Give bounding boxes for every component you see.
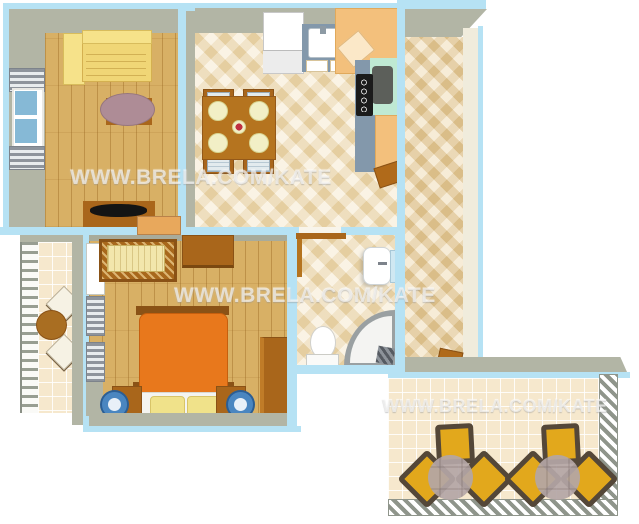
sofa-seat-stitching [86, 50, 146, 76]
bedroom-window-2 [86, 342, 105, 382]
watermark-bottom: WWW.BRELA.COM/KATE [382, 396, 608, 417]
corridor-wall-right [463, 28, 478, 375]
range-hood [372, 66, 393, 104]
watermark-top: WWW.BRELA.COM/KATE [70, 166, 332, 190]
living-room-door [137, 216, 181, 235]
sink-cabinet-doors [306, 60, 328, 72]
corridor-floor [405, 37, 463, 367]
plate-1 [208, 101, 228, 121]
plate-4 [249, 133, 269, 153]
sofa-back [82, 30, 152, 44]
living-room-window-glass-2 [15, 119, 37, 143]
plate-2 [249, 101, 269, 121]
bathroom-door [297, 239, 302, 277]
terrace-wall-top [405, 357, 627, 372]
coffee-table [100, 93, 155, 126]
wall-bedroom-bathroom [287, 227, 297, 432]
cooktop-burners [359, 78, 369, 112]
plate-3 [208, 133, 228, 153]
shower-mat [376, 346, 396, 366]
floor-plan: WWW.BRELA.COM/KATE WWW.BRELA.COM/KATE WW… [0, 0, 639, 524]
sink-faucet [320, 26, 326, 34]
wall-living-kitchen-outline [178, 8, 186, 227]
sink-tap [378, 262, 387, 265]
bedroom-wall-left-lower [86, 382, 103, 416]
bathroom-door-frame [296, 233, 346, 239]
wardrobe [182, 235, 234, 268]
bedroom-window-1 [86, 296, 105, 336]
bedroom-wall-bottom-outline [85, 426, 301, 432]
corridor-wall-right-outline [478, 26, 483, 375]
table-centerpiece [232, 120, 246, 134]
bedroom-wall-bottom [89, 413, 287, 426]
living-room-window-glass [15, 91, 37, 115]
wall-living-kitchen [186, 8, 195, 227]
terrace-table-2 [535, 455, 580, 500]
double-bed-duvet [139, 313, 228, 399]
corridor-outline-top [397, 0, 486, 9]
wall-balcony-bedroom [72, 235, 83, 425]
bathroom-sink [363, 247, 391, 285]
fridge-divider [263, 50, 302, 73]
balcony-wall-top [20, 235, 76, 242]
watermark-middle: WWW.BRELA.COM/KATE [174, 284, 436, 308]
terrace-table-1 [428, 455, 473, 500]
balcony-table [36, 310, 67, 340]
living-room-curtain-bottom [9, 146, 45, 170]
single-bed-mattress [107, 245, 165, 272]
